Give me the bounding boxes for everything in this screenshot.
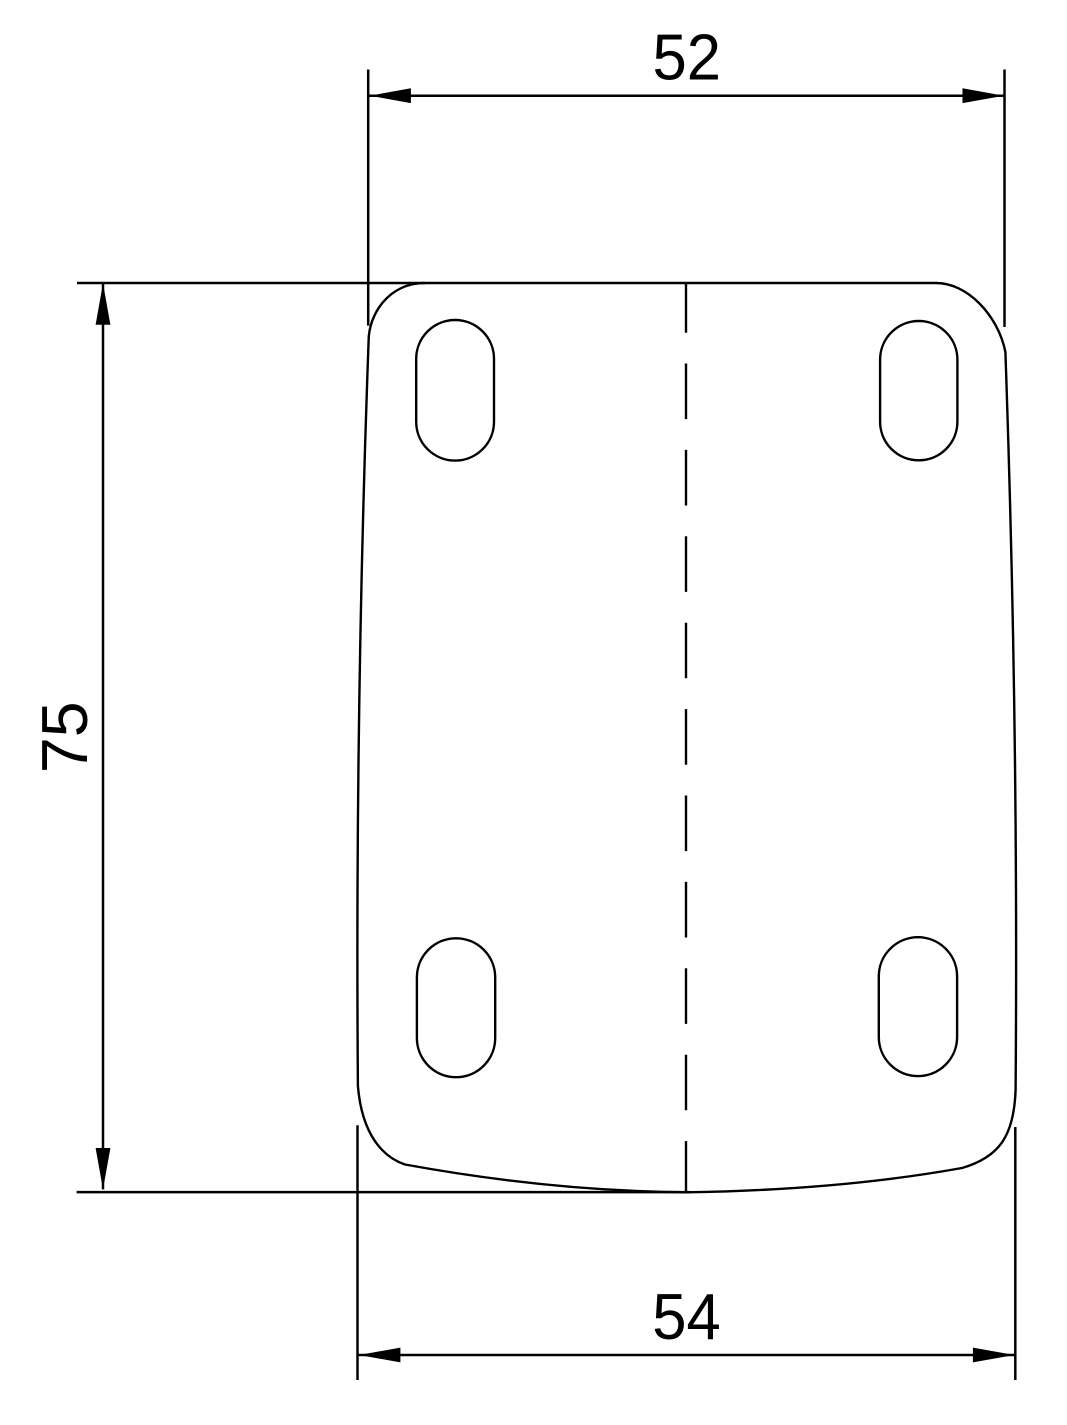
svg-text:52: 52 — [653, 22, 722, 94]
svg-text:54: 54 — [652, 1281, 721, 1353]
svg-text:75: 75 — [29, 701, 101, 773]
